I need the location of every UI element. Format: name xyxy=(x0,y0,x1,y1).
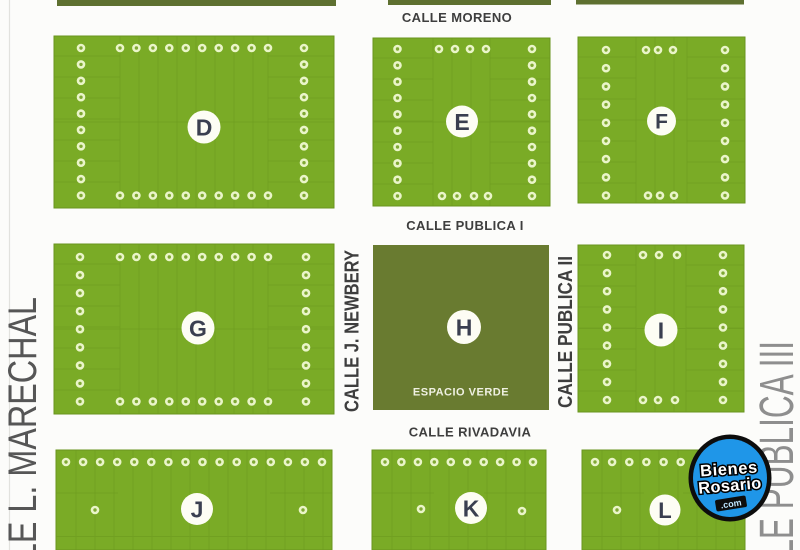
svg-text:CALLE L. MARECHAL: CALLE L. MARECHAL xyxy=(1,297,45,550)
svg-text:L: L xyxy=(658,498,671,523)
svg-text:CALLE PUBLICA II: CALLE PUBLICA II xyxy=(555,256,577,408)
svg-text:CALLE PUBLICA I: CALLE PUBLICA I xyxy=(406,218,523,233)
svg-text:I: I xyxy=(658,317,664,343)
svg-text:CALLE J. NEWBERY: CALLE J. NEWBERY xyxy=(342,249,364,412)
svg-text:CALLE PUBLICA III: CALLE PUBLICA III xyxy=(751,341,800,550)
svg-text:F: F xyxy=(655,111,668,134)
svg-text:G: G xyxy=(189,315,207,341)
svg-text:D: D xyxy=(196,114,213,140)
svg-text:E: E xyxy=(454,109,469,135)
svg-text:K: K xyxy=(463,495,480,521)
svg-text:CALLE RIVADAVIA: CALLE RIVADAVIA xyxy=(409,425,532,440)
svg-text:CALLE MORENO: CALLE MORENO xyxy=(402,10,512,25)
svg-text:H: H xyxy=(456,314,473,340)
svg-text:ESPACIO VERDE: ESPACIO VERDE xyxy=(413,387,509,399)
svg-text:J: J xyxy=(191,496,204,522)
